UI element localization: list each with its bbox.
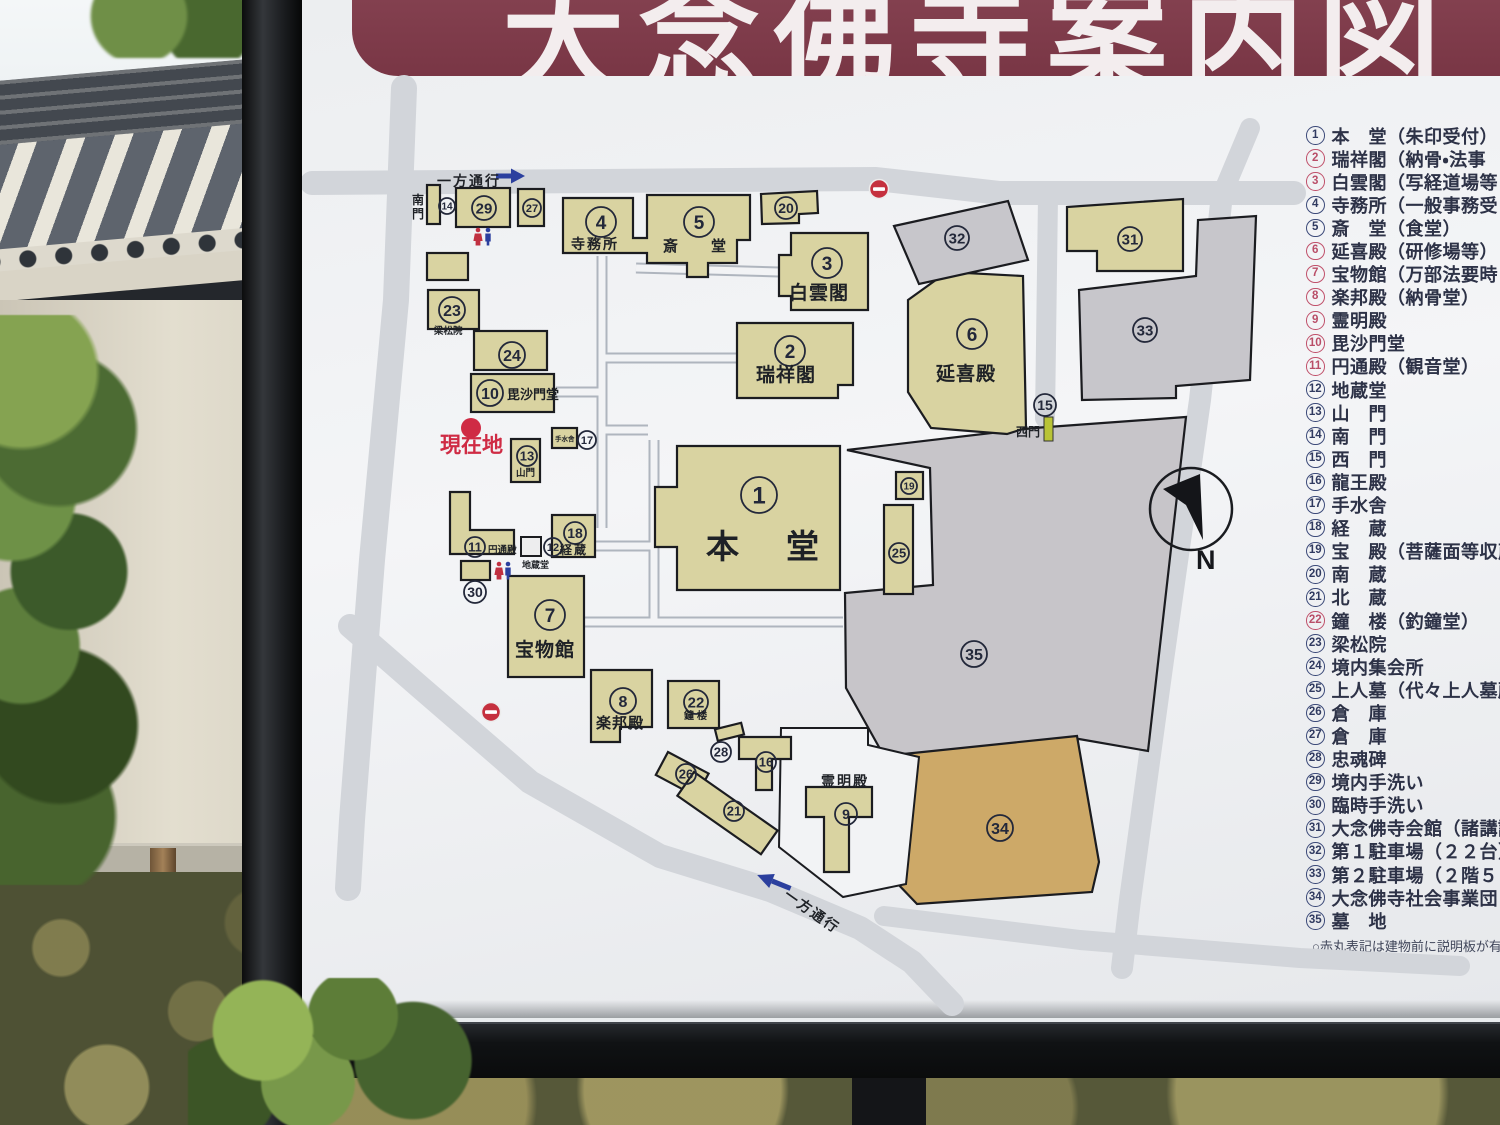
legend-item-15: 15西 門 xyxy=(1306,447,1500,470)
tree-foliage xyxy=(0,315,145,885)
legend-number: 27 xyxy=(1306,727,1325,746)
legend-label: 地蔵堂 xyxy=(1332,377,1388,403)
legend-item-12: 12地蔵堂 xyxy=(1306,378,1500,401)
legend-number: 4 xyxy=(1306,196,1325,215)
legend-label: 倉 庫 xyxy=(1332,700,1388,726)
legend-number: 20 xyxy=(1306,565,1325,584)
legend-number: 18 xyxy=(1306,519,1325,538)
legend-item-31: 31大念佛寺会館（諸講詰 xyxy=(1306,817,1500,840)
legend-item-5: 5斎 堂（食堂） xyxy=(1306,216,1500,239)
legend-item-30: 30臨時手洗い xyxy=(1306,794,1500,817)
legend-item-7: 7宝物館（万部法要時 xyxy=(1306,263,1500,286)
legend-item-33: 33第２駐車場（２階５８台） xyxy=(1306,863,1500,886)
legend-number: 3 xyxy=(1306,172,1325,191)
legend-number: 11 xyxy=(1306,357,1325,376)
legend-number: 12 xyxy=(1306,380,1325,399)
legend-number: 25 xyxy=(1306,681,1325,700)
legend-number: 33 xyxy=(1306,865,1325,884)
legend-number: 17 xyxy=(1306,496,1325,515)
legend-label: 霊明殿 xyxy=(1332,307,1388,333)
legend-item-17: 17手水舎 xyxy=(1306,494,1500,517)
sign-frame-post xyxy=(242,0,302,1125)
legend-item-24: 24境内集会所 xyxy=(1306,655,1500,678)
legend-label: 忠魂碑 xyxy=(1332,746,1388,772)
legend-label: 楽邦殿（納骨堂） xyxy=(1332,284,1480,310)
legend-number: 31 xyxy=(1306,819,1325,838)
legend-item-20: 20南 蔵 xyxy=(1306,563,1500,586)
legend-label: 臨時手洗い xyxy=(1332,792,1425,818)
legend-label: 円通殿（観音堂） xyxy=(1332,353,1480,379)
sign-title: 大念佛寺案内図 xyxy=(502,0,1454,76)
legend-item-19: 19宝 殿（菩薩面等収蔵 xyxy=(1306,540,1500,563)
legend-number: 9 xyxy=(1306,311,1325,330)
legend-item-32: 32第１駐車場（２２台） xyxy=(1306,840,1500,863)
legend-number: 24 xyxy=(1306,657,1325,676)
legend-label: 斎 堂（食堂） xyxy=(1332,215,1462,241)
legend-item-29: 29境内手洗い xyxy=(1306,771,1500,794)
legend-number: 28 xyxy=(1306,750,1325,769)
legend-item-9: 9霊明殿 xyxy=(1306,309,1500,332)
bush xyxy=(188,978,488,1125)
legend-number: 15 xyxy=(1306,450,1325,469)
legend-label: 経 蔵 xyxy=(1332,515,1388,541)
legend-item-25: 25上人墓（代々上人墓所 xyxy=(1306,678,1500,701)
legend-label: 倉 庫 xyxy=(1332,723,1388,749)
legend-item-22: 22鐘 楼（釣鐘堂） xyxy=(1306,609,1500,632)
legend-number: 21 xyxy=(1306,588,1325,607)
legend-label: 延喜殿（研修場等） xyxy=(1332,238,1499,264)
legend-item-21: 21北 蔵 xyxy=(1306,586,1500,609)
legend-label: 手水舎 xyxy=(1332,492,1388,518)
legend-label: 境内集会所 xyxy=(1332,654,1425,680)
legend-number: 22 xyxy=(1306,611,1325,630)
legend-item-23: 23梁松院 xyxy=(1306,632,1500,655)
legend-item-13: 13山 門 xyxy=(1306,401,1500,424)
legend-item-35: 35墓 地 xyxy=(1306,909,1500,932)
legend-label: 本 堂（朱印受付） xyxy=(1332,123,1499,149)
legend-number: 5 xyxy=(1306,219,1325,238)
legend-label: 宝 殿（菩薩面等収蔵 xyxy=(1332,538,1500,564)
legend-item-2: 2瑞祥閣（納骨・法事 xyxy=(1306,147,1500,170)
legend-label: 寺務所（一般事務受 xyxy=(1332,192,1499,218)
sign-board: 大念佛寺案内図 1本 堂（朱印受付）2瑞祥閣（納骨・法事3白雲閣（写経道場等4寺… xyxy=(300,0,1500,1016)
legend-number: 13 xyxy=(1306,403,1325,422)
legend-item-16: 16龍王殿 xyxy=(1306,470,1500,493)
legend-item-10: 10毘沙門堂 xyxy=(1306,332,1500,355)
legend-label: 白雲閣（写経道場等 xyxy=(1332,169,1499,195)
legend-number: 34 xyxy=(1306,888,1325,907)
legend-number: 8 xyxy=(1306,288,1325,307)
legend-label: 大念佛寺会館（諸講詰 xyxy=(1332,815,1500,841)
legend-label: 第１駐車場（２２台） xyxy=(1332,838,1500,864)
legend-label: 第２駐車場（２階５８台） xyxy=(1332,862,1500,888)
legend-number: 19 xyxy=(1306,542,1325,561)
legend-label: 龍王殿 xyxy=(1332,469,1388,495)
legend-number: 26 xyxy=(1306,704,1325,723)
legend-label: 宝物館（万部法要時 xyxy=(1332,261,1499,287)
legend-item-6: 6延喜殿（研修場等） xyxy=(1306,239,1500,262)
legend-number: 2 xyxy=(1306,149,1325,168)
legend-label: 上人墓（代々上人墓所 xyxy=(1332,677,1500,703)
legend-item-11: 11円通殿（観音堂） xyxy=(1306,355,1500,378)
legend-item-18: 18経 蔵 xyxy=(1306,517,1500,540)
legend-label: 鐘 楼（釣鐘堂） xyxy=(1332,608,1480,634)
legend-number: 32 xyxy=(1306,842,1325,861)
legend-item-27: 27倉 庫 xyxy=(1306,724,1500,747)
legend-label: 毘沙門堂 xyxy=(1332,330,1406,356)
legend-number: 1 xyxy=(1306,126,1325,145)
legend-number: 29 xyxy=(1306,773,1325,792)
sign-frame-leg xyxy=(852,1078,926,1125)
legend-number: 23 xyxy=(1306,634,1325,653)
legend-number: 10 xyxy=(1306,334,1325,353)
photo-of-temple-map-sign: 大念佛寺案内図 1本 堂（朱印受付）2瑞祥閣（納骨・法事3白雲閣（写経道場等4寺… xyxy=(0,0,1500,1125)
legend-item-4: 4寺務所（一般事務受 xyxy=(1306,193,1500,216)
legend-label: 南 蔵 xyxy=(1332,561,1388,587)
legend-label: 西 門 xyxy=(1332,446,1388,472)
legend-panel: 1本 堂（朱印受付）2瑞祥閣（納骨・法事3白雲閣（写経道場等4寺務所（一般事務受… xyxy=(1306,124,1500,932)
legend-number: 6 xyxy=(1306,242,1325,261)
legend-item-26: 26倉 庫 xyxy=(1306,701,1500,724)
legend-number: 7 xyxy=(1306,265,1325,284)
legend-item-3: 3白雲閣（写経道場等 xyxy=(1306,170,1500,193)
legend-number: 30 xyxy=(1306,796,1325,815)
legend-footnote: ○赤丸表記は建物前に説明板が有り xyxy=(1312,936,1500,955)
legend-label: 大念佛寺社会事業団 xyxy=(1332,885,1499,911)
legend-label: 境内手洗い xyxy=(1332,769,1425,795)
legend-label: 山 門 xyxy=(1332,400,1388,426)
legend-item-8: 8楽邦殿（納骨堂） xyxy=(1306,286,1500,309)
legend-number: 35 xyxy=(1306,911,1325,930)
legend-label: 梁松院 xyxy=(1332,631,1388,657)
legend-label: 瑞祥閣（納骨・法事 xyxy=(1332,146,1487,172)
legend-item-14: 14南 門 xyxy=(1306,424,1500,447)
legend-label: 北 蔵 xyxy=(1332,584,1388,610)
legend-number: 16 xyxy=(1306,473,1325,492)
sign-title-band: 大念佛寺案内図 xyxy=(352,0,1500,76)
legend-item-34: 34大念佛寺社会事業団 xyxy=(1306,886,1500,909)
legend-number: 14 xyxy=(1306,427,1325,446)
legend-label: 南 門 xyxy=(1332,423,1388,449)
legend-item-1: 1本 堂（朱印受付） xyxy=(1306,124,1500,147)
legend-label: 墓 地 xyxy=(1332,908,1388,934)
legend-item-28: 28忠魂碑 xyxy=(1306,748,1500,771)
